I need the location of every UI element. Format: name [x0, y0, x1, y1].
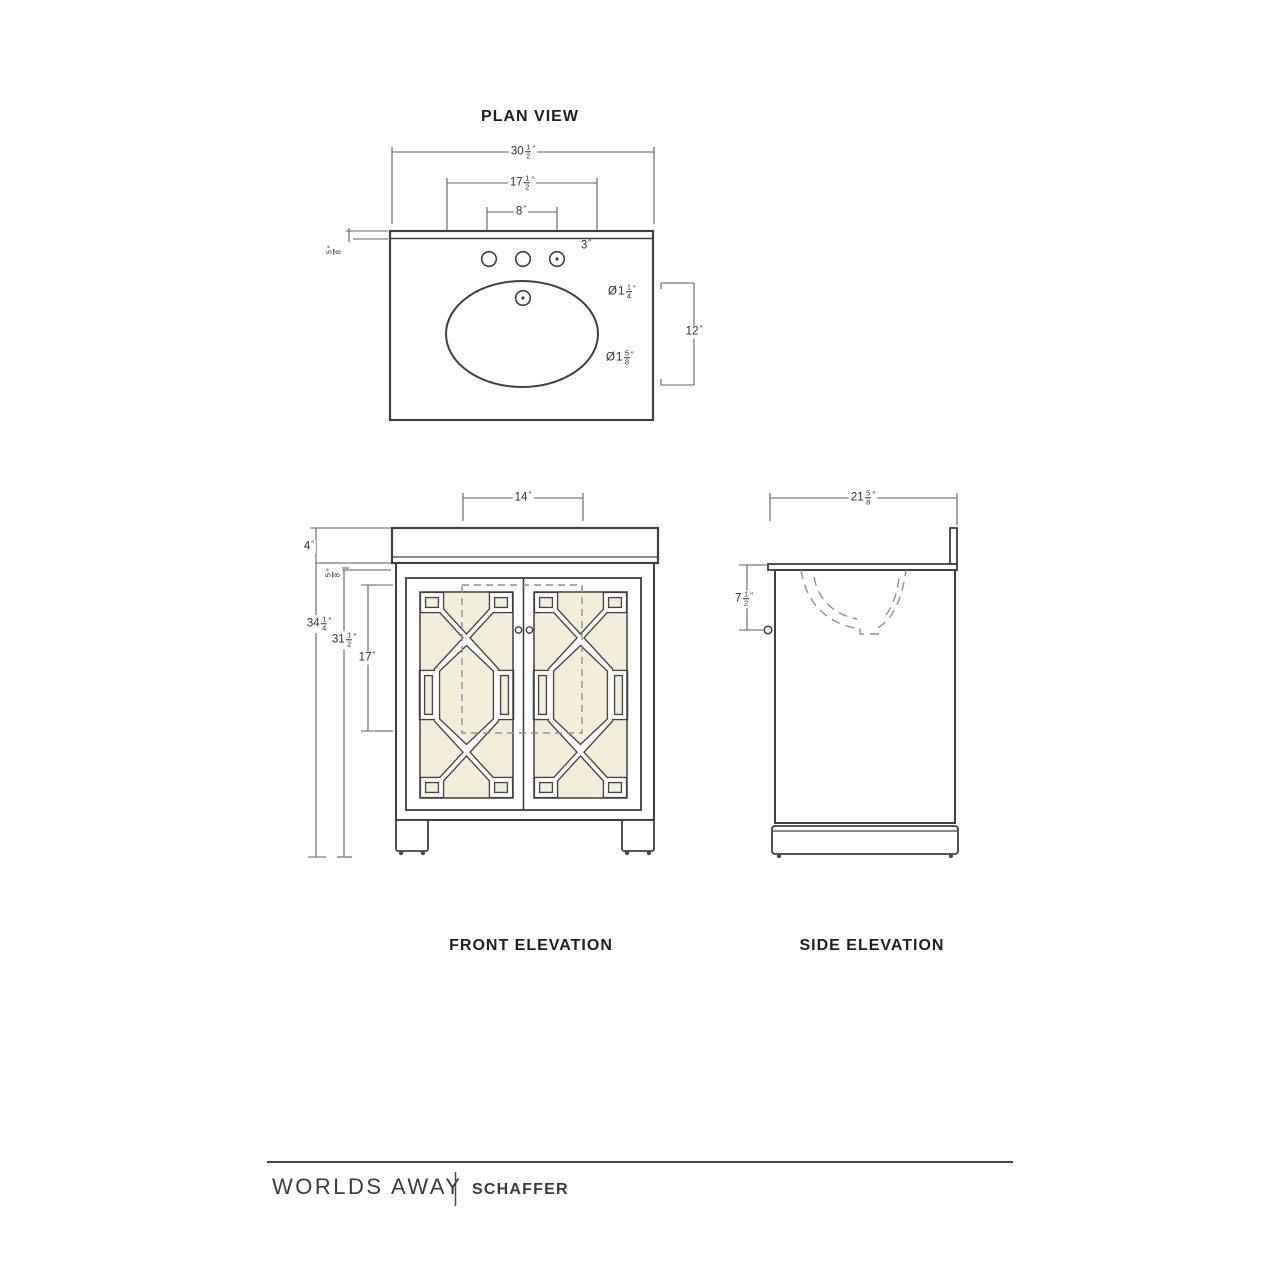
- dim-plan-top-thickness: 58″: [325, 243, 343, 259]
- side-elevation-linework: [739, 493, 958, 858]
- front-elevation-title: FRONT ELEVATION: [449, 937, 613, 955]
- dim-plan-faucet-spread: 8″: [514, 206, 528, 219]
- left-door: [420, 592, 513, 798]
- dim-front-sink-cutout-width: 14″: [513, 492, 534, 505]
- plan-view-title: PLAN VIEW: [481, 108, 579, 126]
- dim-side-overall-depth: 2158″: [849, 489, 877, 507]
- product-name: SCHAFFER: [472, 1181, 569, 1199]
- dim-plan-faucet-hole-diameter: Ø114″: [606, 283, 638, 301]
- brand-name: WORLDS AWAY: [272, 1174, 462, 1200]
- left-door-knob: [515, 627, 521, 633]
- side-cabinet-body: [775, 570, 955, 823]
- drawing-canvas: [0, 0, 1280, 1280]
- countertop-outline: [390, 231, 653, 420]
- dim-plan-overall-width: 3012″: [509, 143, 537, 161]
- dim-front-backsplash-height: 4″: [302, 541, 316, 554]
- dim-plan-drain-diameter: Ø158″: [604, 349, 636, 367]
- dim-front-overall-height: 3414″: [305, 615, 333, 633]
- side-backsplash: [950, 528, 957, 564]
- front-feet: [396, 820, 654, 855]
- dim-front-cabinet-height: 3112″: [330, 631, 358, 649]
- dim-plan-sink-depth: 12″: [684, 326, 705, 339]
- front-countertop-band: [392, 528, 658, 563]
- dim-front-door-height: 17″: [357, 652, 378, 665]
- side-elevation-title: SIDE ELEVATION: [800, 937, 945, 955]
- right-door: [534, 592, 627, 798]
- dim-plan-faucet-offset: 3″: [579, 240, 593, 253]
- right-door-knob: [526, 627, 532, 633]
- side-base: [772, 826, 958, 858]
- spec-sheet: PLAN VIEW FRONT ELEVATION SIDE ELEVATION…: [0, 0, 1280, 1280]
- side-door-knob: [764, 626, 772, 634]
- dim-side-bowl-depth: 712″: [733, 590, 755, 608]
- drain-hole-center: [521, 296, 524, 299]
- dim-plan-sink-width: 1712″: [508, 174, 536, 192]
- dim-front-top-thickness: 58″: [324, 566, 342, 582]
- front-elevation-linework: [308, 493, 658, 857]
